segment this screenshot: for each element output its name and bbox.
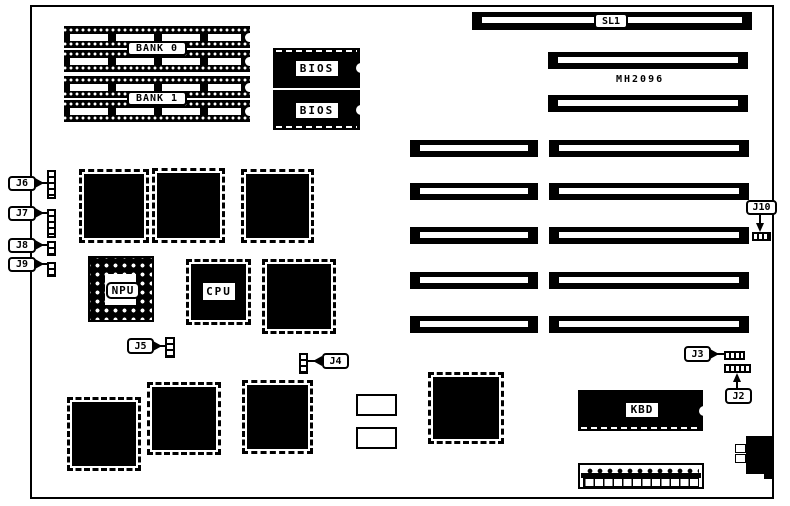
- expansion-slot: [548, 52, 748, 69]
- expansion-slot: [548, 95, 748, 112]
- cpu-label: CPU: [203, 283, 235, 300]
- simm-contacts: [70, 58, 241, 65]
- npu-label: NPU: [106, 282, 140, 299]
- socket-edge: [276, 50, 357, 52]
- sl1-label: SL1: [594, 13, 628, 29]
- simm-notch: [245, 33, 250, 42]
- jumper-j10-pins: [752, 232, 771, 241]
- jumper-j3-label: J3: [684, 346, 711, 362]
- jumper-j7-label: J7: [8, 206, 36, 221]
- din-notch: [735, 454, 746, 463]
- power-connector: [578, 463, 704, 489]
- qfp-chip: [152, 387, 216, 450]
- simm-contacts: [70, 108, 241, 115]
- power-connector-terminals: [583, 478, 699, 487]
- jumper-j9-label: J9: [8, 257, 36, 272]
- chip-notch: [356, 105, 361, 115]
- pointer-line: [39, 244, 48, 246]
- simm-notch: [245, 107, 250, 116]
- qfp-chip: [247, 385, 308, 449]
- expansion-slot: [410, 227, 538, 244]
- jumper-j10-label: J10: [746, 200, 777, 215]
- kbd-label: KBD: [626, 403, 658, 417]
- bank0-label: BANK 0: [127, 41, 187, 56]
- simm-contacts: [70, 34, 241, 41]
- jumper-j6-pins: [47, 170, 56, 199]
- expansion-slot: [549, 272, 749, 289]
- bios-label: BIOS: [296, 61, 338, 76]
- simm-notch: [245, 83, 250, 92]
- crystal-oscillator: [356, 394, 397, 416]
- keyboard-din-connector: [746, 436, 774, 474]
- keyboard-din-connector-foot: [764, 474, 774, 479]
- pointer-line: [736, 378, 738, 388]
- jumper-j4-label: J4: [322, 353, 349, 369]
- socket-edge: [581, 427, 700, 429]
- bios-label: BIOS: [296, 103, 338, 118]
- jumper-j5-pins: [165, 337, 175, 358]
- jumper-j4-pins: [299, 353, 308, 374]
- qfp-chip: [246, 174, 309, 238]
- expansion-slot: [549, 140, 749, 157]
- pointer-line: [39, 182, 48, 184]
- kbd-controller-chip: KBD: [578, 390, 703, 431]
- simm-notch: [245, 57, 250, 66]
- cpu-chip: CPU: [191, 264, 246, 320]
- jumper-j9-pins: [47, 262, 56, 277]
- chip-notch: [356, 63, 361, 73]
- expansion-slot: [410, 140, 538, 157]
- npu-socket: NPU: [88, 256, 154, 322]
- chip-notch: [699, 406, 704, 416]
- jumper-j8-label: J8: [8, 238, 36, 253]
- jumper-j8-pins: [47, 241, 56, 256]
- qfp-chip: [84, 174, 144, 238]
- expansion-slot: [410, 272, 538, 289]
- simm-contacts: [70, 84, 241, 91]
- qfp-chip: [72, 402, 136, 466]
- pointer-line: [39, 263, 48, 265]
- bank1-label: BANK 1: [127, 91, 187, 106]
- pointer-arrow: [313, 356, 322, 366]
- jumper-j6-label: J6: [8, 176, 36, 191]
- qfp-chip: [157, 173, 220, 238]
- crystal-oscillator: [356, 427, 397, 449]
- din-notch: [735, 444, 746, 453]
- jumper-j3-pins: [724, 351, 745, 360]
- pointer-line: [39, 212, 48, 214]
- jumper-j2-pins: [724, 364, 751, 373]
- board-model-label: MH2096: [616, 74, 664, 85]
- jumper-j2-label: J2: [725, 388, 752, 404]
- bios-chip-1: BIOS: [273, 48, 360, 88]
- expansion-slot: [549, 227, 749, 244]
- pointer-line: [158, 345, 166, 347]
- motherboard-diagram: BANK 0 BANK 1 BIOS BIOS SL1 MH2096 J10 N…: [0, 0, 790, 506]
- expansion-slot: [410, 316, 538, 333]
- pointer-line: [715, 353, 725, 355]
- bios-chip-2: BIOS: [273, 90, 360, 130]
- qfp-chip: [433, 377, 499, 439]
- expansion-slot: [549, 183, 749, 200]
- expansion-slot: [410, 183, 538, 200]
- qfp-chip: [267, 264, 331, 329]
- jumper-j7-pins: [47, 209, 56, 238]
- expansion-slot: [549, 316, 749, 333]
- jumper-j5-label: J5: [127, 338, 154, 354]
- socket-edge: [276, 126, 357, 128]
- pointer-arrow: [756, 223, 764, 232]
